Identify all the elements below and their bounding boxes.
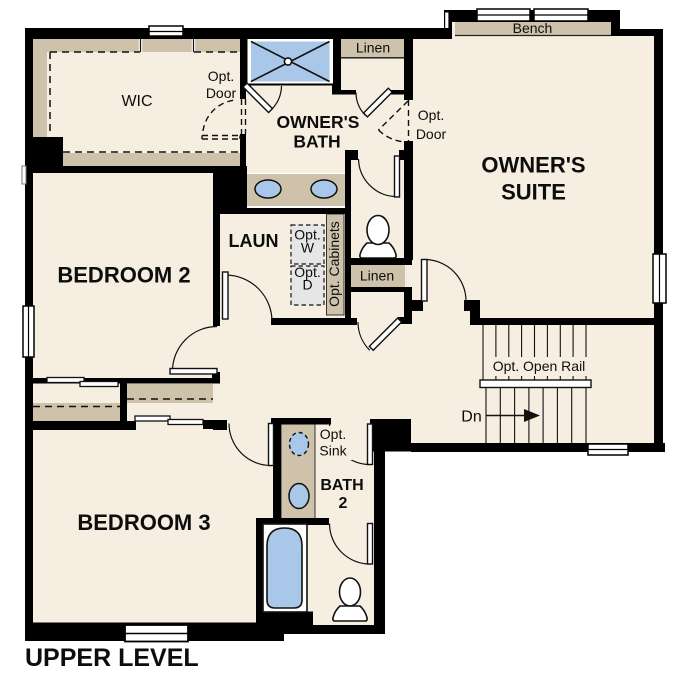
svg-text:Opt. Open Rail: Opt. Open Rail xyxy=(493,358,586,374)
svg-text:Opt. Cabinets: Opt. Cabinets xyxy=(326,221,342,307)
svg-text:Bench: Bench xyxy=(513,20,553,36)
svg-text:Opt.: Opt. xyxy=(418,107,444,123)
svg-text:W: W xyxy=(301,240,315,256)
svg-text:UPPER LEVEL: UPPER LEVEL xyxy=(25,644,199,672)
svg-text:Sink: Sink xyxy=(319,443,347,459)
svg-text:D: D xyxy=(302,277,312,293)
svg-text:SUITE: SUITE xyxy=(501,180,566,205)
svg-text:BATH: BATH xyxy=(293,132,340,152)
svg-text:OWNER'S: OWNER'S xyxy=(277,112,360,132)
svg-text:WIC: WIC xyxy=(121,93,152,110)
svg-text:BATH: BATH xyxy=(320,477,363,494)
svg-text:2: 2 xyxy=(339,495,348,512)
svg-text:Linen: Linen xyxy=(360,268,394,284)
svg-text:Opt.: Opt. xyxy=(208,68,234,84)
svg-text:BEDROOM 2: BEDROOM 2 xyxy=(57,263,190,288)
svg-text:Door: Door xyxy=(206,85,237,101)
svg-text:Dn: Dn xyxy=(461,409,481,426)
svg-text:Door: Door xyxy=(416,126,447,142)
svg-text:LAUN: LAUN xyxy=(229,231,279,251)
svg-text:BEDROOM 3: BEDROOM 3 xyxy=(77,510,210,535)
svg-text:Opt.: Opt. xyxy=(320,426,346,442)
svg-text:OWNER'S: OWNER'S xyxy=(481,153,585,178)
svg-text:Linen: Linen xyxy=(356,40,390,56)
